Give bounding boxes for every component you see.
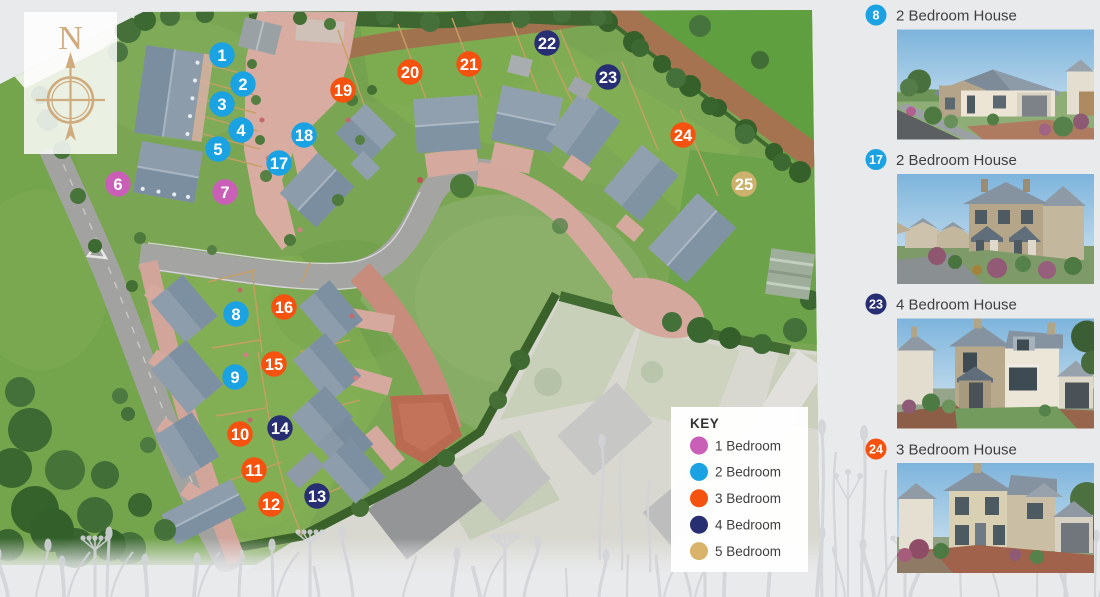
svg-text:2 Bedroom: 2 Bedroom (715, 465, 781, 480)
svg-text:23: 23 (599, 69, 617, 87)
svg-text:21: 21 (460, 56, 478, 74)
svg-text:14: 14 (271, 420, 290, 438)
svg-text:KEY: KEY (690, 416, 719, 431)
svg-text:5: 5 (213, 141, 222, 159)
svg-text:8: 8 (231, 306, 240, 324)
svg-text:10: 10 (231, 426, 249, 444)
svg-text:12: 12 (262, 496, 280, 514)
svg-text:3: 3 (217, 96, 226, 114)
svg-text:11: 11 (245, 462, 262, 480)
svg-text:15: 15 (265, 356, 283, 374)
svg-text:9: 9 (230, 369, 239, 387)
svg-text:20: 20 (401, 64, 419, 82)
svg-text:1 Bedroom: 1 Bedroom (715, 438, 781, 453)
svg-text:N: N (58, 20, 83, 57)
svg-text:3 Bedroom: 3 Bedroom (715, 491, 781, 506)
svg-text:19: 19 (334, 82, 352, 100)
svg-text:25: 25 (735, 176, 753, 194)
svg-text:18: 18 (295, 127, 313, 145)
svg-text:22: 22 (538, 35, 556, 53)
svg-text:2 Bedroom House: 2 Bedroom House (896, 8, 1017, 25)
svg-text:13: 13 (308, 488, 326, 506)
svg-text:5 Bedroom: 5 Bedroom (715, 544, 781, 559)
svg-text:16: 16 (275, 299, 293, 317)
svg-text:23: 23 (869, 298, 883, 312)
svg-text:3 Bedroom House: 3 Bedroom House (896, 442, 1017, 459)
svg-text:6: 6 (113, 176, 122, 194)
svg-text:2 Bedroom House: 2 Bedroom House (896, 152, 1017, 169)
svg-text:24: 24 (869, 443, 883, 457)
svg-text:4: 4 (236, 122, 246, 140)
svg-text:4 Bedroom House: 4 Bedroom House (896, 297, 1017, 314)
svg-text:7: 7 (220, 184, 229, 202)
svg-text:17: 17 (869, 153, 883, 167)
svg-text:17: 17 (270, 155, 288, 173)
svg-text:24: 24 (674, 127, 693, 145)
svg-text:2: 2 (238, 76, 247, 94)
svg-text:8: 8 (873, 9, 880, 23)
svg-text:4 Bedroom: 4 Bedroom (715, 518, 781, 533)
svg-text:1: 1 (217, 47, 226, 65)
